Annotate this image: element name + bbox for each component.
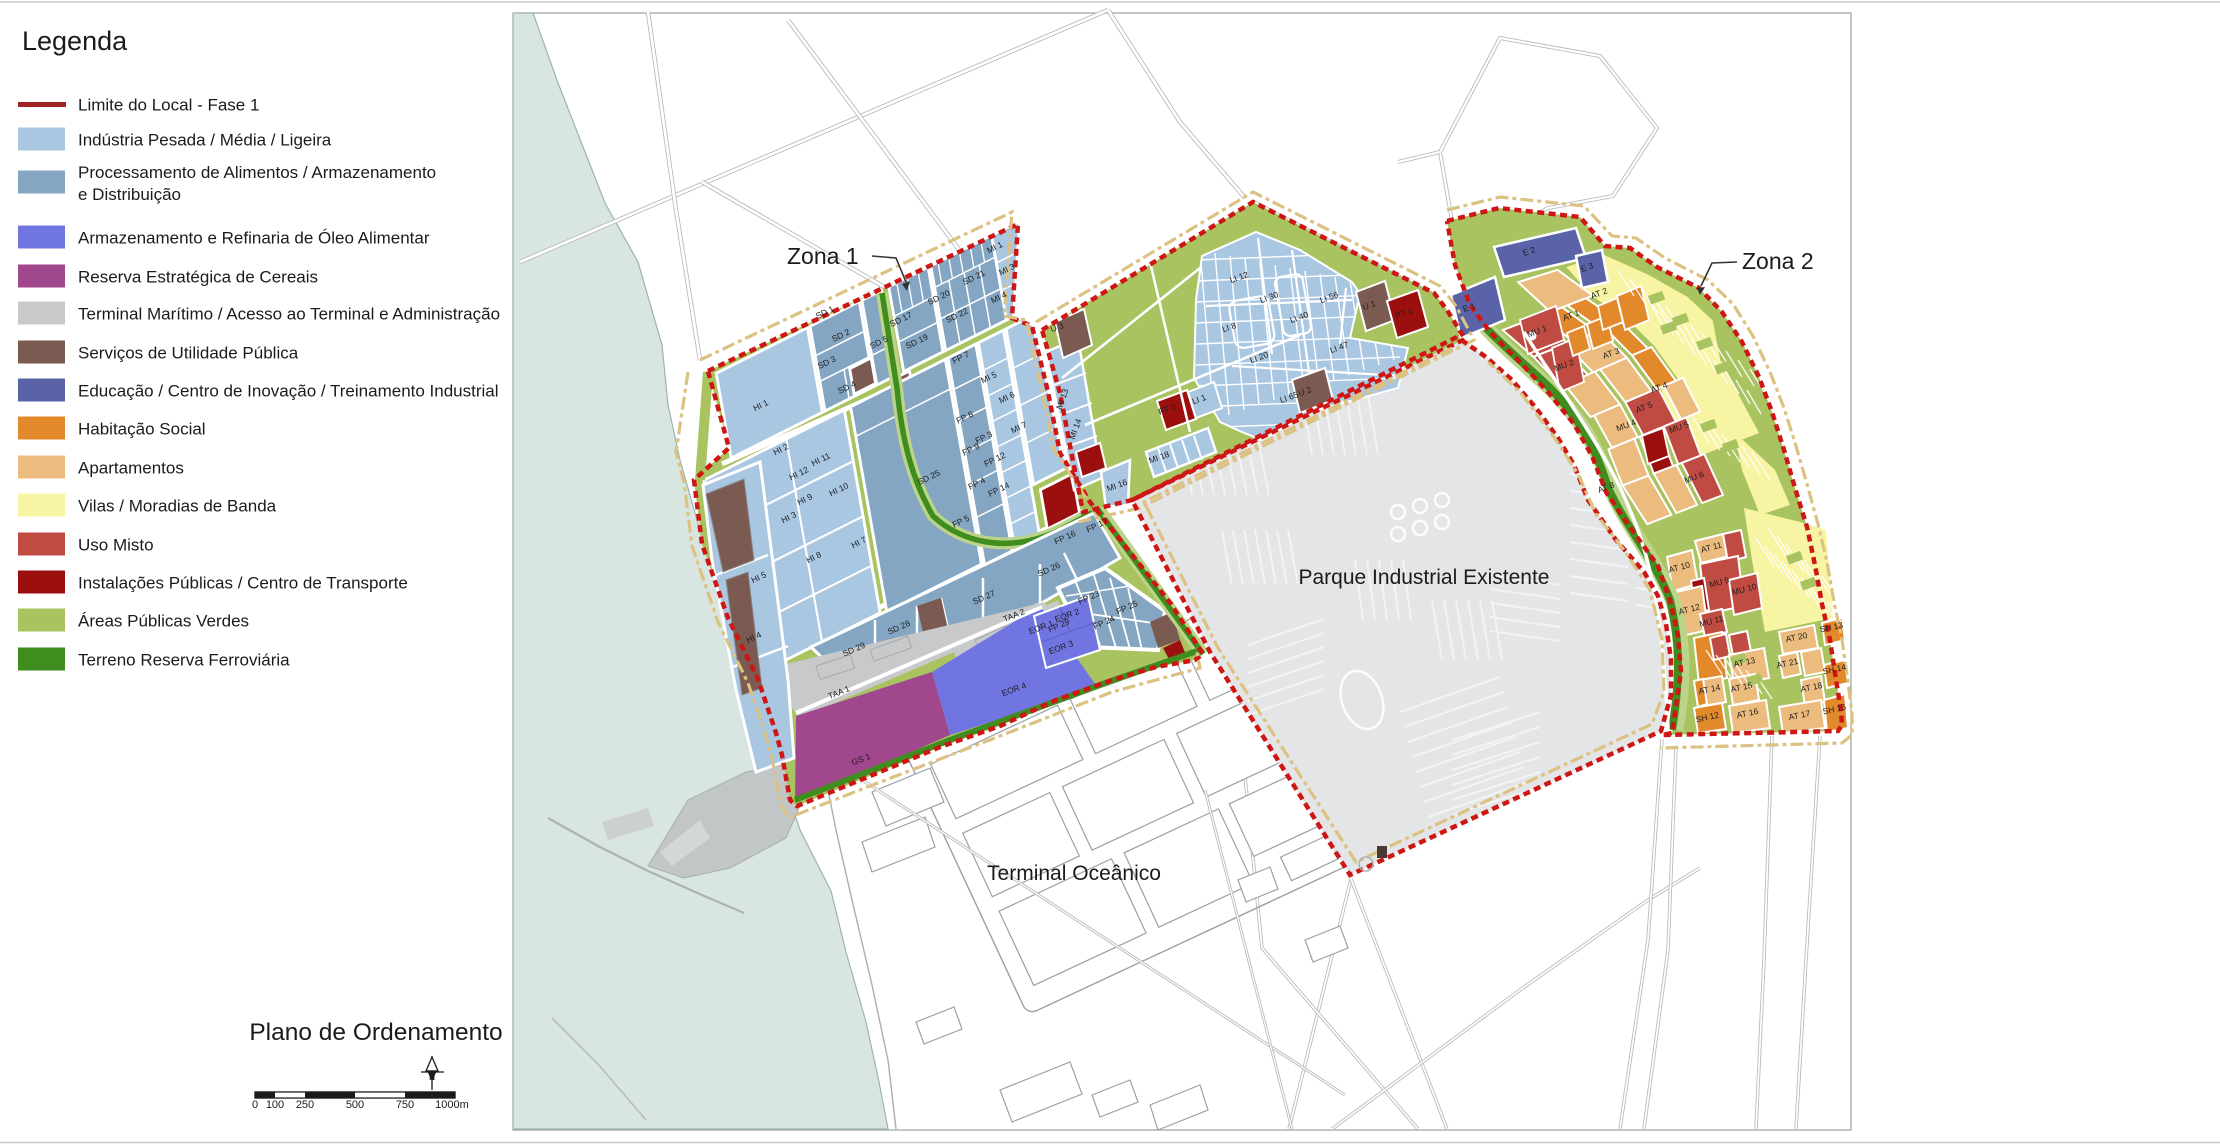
svg-text:Zona 1: Zona 1 [787, 243, 859, 269]
svg-text:Terminal Marítimo / Acesso ao: Terminal Marítimo / Acesso ao Terminal e… [78, 305, 500, 324]
svg-text:Terreno Reserva Ferroviária: Terreno Reserva Ferroviária [78, 651, 290, 670]
svg-text:Uso Misto: Uso Misto [78, 536, 154, 555]
svg-text:Serviços de Utilidade Pública: Serviços de Utilidade Pública [78, 344, 299, 363]
svg-text:250: 250 [296, 1099, 314, 1111]
svg-text:100: 100 [266, 1099, 284, 1111]
svg-text:750: 750 [396, 1099, 414, 1111]
svg-text:Educação / Centro de Inovação: Educação / Centro de Inovação / Treiname… [78, 382, 499, 401]
svg-text:Apartamentos: Apartamentos [78, 459, 184, 478]
svg-text:Reserva Estratégica de Cereais: Reserva Estratégica de Cereais [78, 268, 318, 287]
svg-text:Limite do Local - Fase 1: Limite do Local - Fase 1 [78, 96, 259, 115]
svg-text:Instalações Públicas / Centro: Instalações Públicas / Centro de Transpo… [78, 574, 408, 593]
svg-text:Terminal Oceânico: Terminal Oceânico [987, 862, 1161, 885]
svg-text:Processamento de Alimentos / A: Processamento de Alimentos / Armazenamen… [78, 163, 436, 182]
svg-text:Armazenamento e Refinaria de Ó: Armazenamento e Refinaria de Óleo Alimen… [78, 229, 430, 248]
svg-text:0: 0 [252, 1099, 258, 1111]
svg-text:Indústria Pesada / Média / Lig: Indústria Pesada / Média / Ligeira [78, 131, 332, 150]
svg-text:N: N [429, 1073, 435, 1082]
svg-text:Legenda: Legenda [22, 26, 128, 56]
svg-text:500: 500 [346, 1099, 364, 1111]
svg-text:Vilas / Moradias de Banda: Vilas / Moradias de Banda [78, 497, 277, 516]
svg-text:1000m: 1000m [435, 1099, 469, 1111]
svg-text:Plano de Ordenamento: Plano de Ordenamento [249, 1019, 502, 1046]
svg-text:Habitação Social: Habitação Social [78, 420, 206, 439]
svg-text:Parque Industrial Existente: Parque Industrial Existente [1299, 566, 1550, 589]
svg-text:Áreas Públicas Verdes: Áreas Públicas Verdes [78, 612, 249, 631]
svg-text:Zona 2: Zona 2 [1742, 248, 1814, 274]
svg-text:e Distribuição: e Distribuição [78, 185, 181, 204]
